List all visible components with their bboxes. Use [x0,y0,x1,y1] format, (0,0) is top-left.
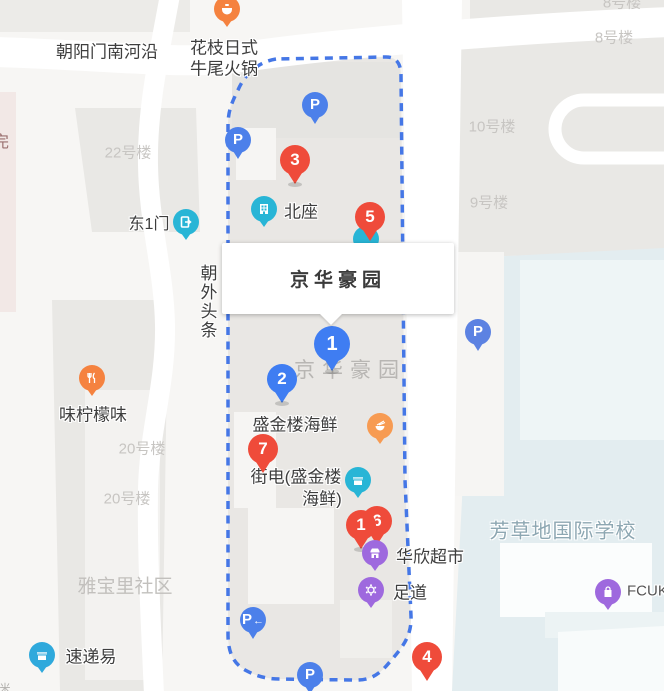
hotpot-icon [214,0,240,22]
label-building-9: 9号楼 [470,192,508,213]
red-marker-4[interactable]: 4 [412,642,442,681]
label-road-chaoyangmen: 朝阳门南河沿 [56,38,158,63]
poi-east-gate[interactable] [173,209,199,240]
pin-tail [310,116,320,124]
label-sudiyi: 速递易 [66,643,117,668]
pin-tail [363,230,377,241]
pin-tail [222,20,232,27]
label-east-gate: 东1门 [129,210,170,234]
label-yabaoli-community: 雅宝里社区 [77,572,172,599]
pin-tail [37,666,47,673]
parking-icon: P [297,662,323,688]
pin-tail [305,686,315,691]
marker-number: 4 [412,642,442,672]
poi-sudiyi-locker[interactable] [29,642,55,673]
label-hotpot-line2: 牛尾火锅 [190,55,258,80]
red-marker-3[interactable]: 3 [280,145,310,187]
red-marker-7[interactable]: 7 [248,434,278,473]
road-pink-strip [0,92,16,312]
pin-tail [375,437,385,444]
red-marker-5[interactable]: 5 [355,202,385,241]
pin-tail [353,491,363,498]
infobox-pointer [320,314,342,325]
pin-tail [420,670,434,681]
label-partial-bottom: 米 [0,680,11,691]
foot-spa-icon [358,577,384,603]
marker-number: 3 [280,145,310,175]
marker-number: 1 [314,326,350,362]
school-building-3 [558,626,664,691]
utensils-icon [79,365,105,391]
pin-tail [473,343,483,351]
blue-marker-2[interactable]: 2 [267,364,297,406]
label-fcuk: FCUK [627,583,664,600]
parking-pin-2[interactable]: P [302,92,328,124]
label-partial-left: 完 [0,128,9,152]
label-jiedian-line2: 海鲜) [302,485,342,510]
parking-pin-1[interactable]: P [225,127,251,159]
poi-fcuk-store[interactable] [595,579,621,610]
pin-tail [233,151,243,159]
label-building-8: 8号楼 [595,27,633,48]
pin-shadow [275,401,289,406]
pin-tail [366,601,376,608]
pin-tail [87,389,97,396]
pin-shadow [288,182,302,187]
parking-letter: P [242,611,252,628]
bowl-icon [367,413,393,439]
label-north-block: 北座 [284,198,318,223]
left-arrow-icon: ← [253,615,264,627]
label-building-10: 10号楼 [469,116,516,137]
pin-tail [256,462,270,473]
label-building-20a: 20号楼 [119,438,166,459]
poi-hotpot-restaurant[interactable] [214,0,240,27]
label-school: 芳草地国际学校 [490,515,637,544]
label-seafood-restaurant: 盛金楼海鲜 [253,411,338,436]
pin-tail [181,233,191,240]
label-estate-jinghua: 京华豪园 [294,354,406,384]
poi-seafood-restaurant[interactable] [367,413,393,444]
label-lemon-restaurant: 味柠檬味 [59,401,127,426]
infobox-title: 京华豪园 [222,243,454,314]
blue-marker-1[interactable]: 1 [314,326,350,374]
label-building-8-partial: 8号楼 [603,0,641,13]
poi-lemon-restaurant[interactable] [79,365,105,396]
parking-entrance-pin[interactable]: P← [240,607,266,639]
building-icon [251,196,277,222]
pin-tail [370,564,380,571]
marker-number: 5 [355,202,385,232]
parking-icon: P [302,92,328,118]
poi-north-block[interactable] [251,196,277,227]
supermarket-icon [362,540,388,566]
parking-entrance-icon: P← [240,607,266,633]
storefront-icon [29,642,55,668]
pin-shadow [325,369,339,374]
school-building-1 [500,543,652,617]
shopping-bag-icon [595,579,621,605]
label-building-20b: 20号楼 [104,488,151,509]
label-road-chaowai: 朝外头条 [195,264,220,340]
storefront-icon [345,467,371,493]
label-building-22: 22号楼 [105,142,152,163]
parking-icon: P [465,319,491,345]
marker-number: 2 [267,364,297,394]
poi-huaxin-supermarket[interactable] [362,540,388,571]
infobox-jinghua-haoyuan[interactable]: 京华豪园 [222,243,454,314]
label-huaxin-market: 华欣超市 [396,543,464,568]
poi-jiedian-powerbank[interactable] [345,467,371,498]
poi-zudao-footmassage[interactable] [358,577,384,608]
map-canvas[interactable]: 8号楼 8号楼 10号楼 9号楼 22号楼 20号楼 20号楼 雅宝里社区 京华… [0,0,664,691]
school-north-court [520,260,664,440]
parking-icon: P [225,127,251,153]
marker-number: 1 [346,510,376,540]
parking-pin-5[interactable]: P [297,662,323,691]
pin-tail [603,603,613,610]
parking-pin-3[interactable]: P [465,319,491,351]
pin-tail [248,631,258,639]
marker-number: 7 [248,434,278,464]
compound-court-4 [340,600,392,658]
pin-tail [259,220,269,227]
label-zudao: 足道 [393,579,427,604]
compound-court-3 [248,508,334,604]
gate-icon [173,209,199,235]
